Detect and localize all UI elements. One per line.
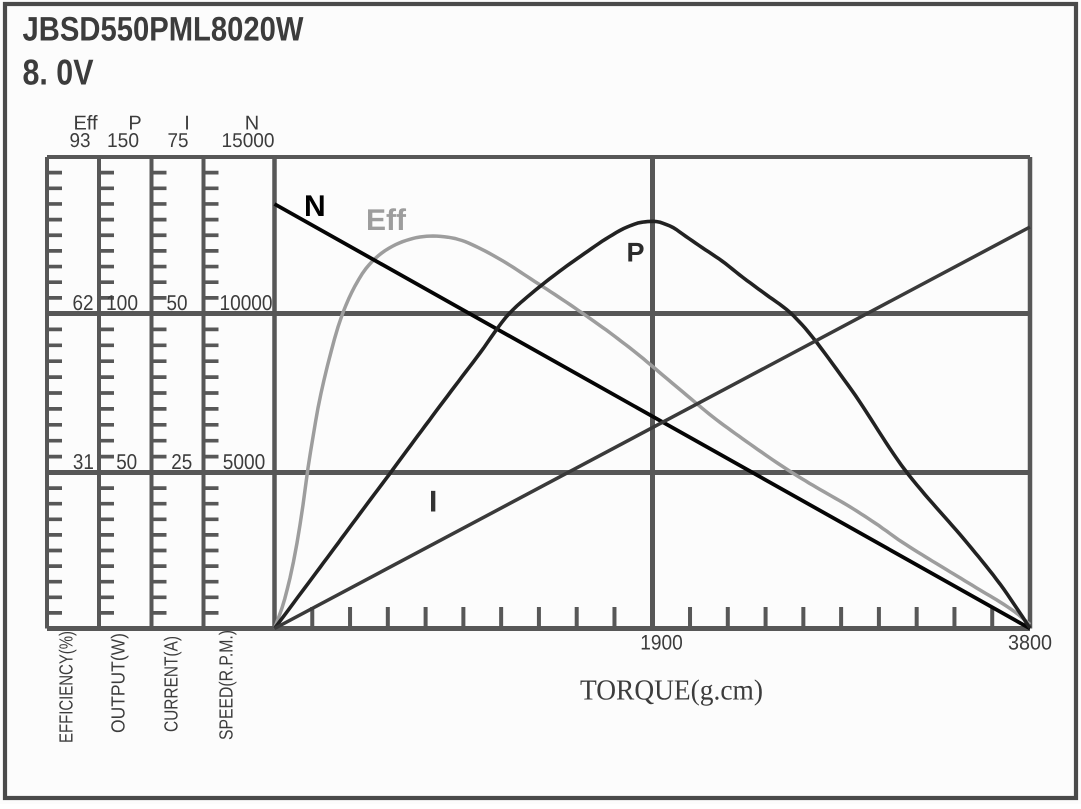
svg-text:93: 93 <box>70 130 91 152</box>
svg-text:Eff: Eff <box>366 204 407 237</box>
svg-text:OUTPUT(W): OUTPUT(W) <box>109 633 130 733</box>
svg-text:P: P <box>627 237 645 267</box>
svg-text:62: 62 <box>73 291 94 315</box>
svg-text:150: 150 <box>107 130 139 152</box>
svg-text:50: 50 <box>167 291 188 315</box>
svg-text:TORQUE(g.cm): TORQUE(g.cm) <box>580 675 763 707</box>
svg-text:CURRENT(A): CURRENT(A) <box>162 636 183 732</box>
svg-text:10000: 10000 <box>220 291 273 315</box>
svg-text:SPEED(R.P.M.): SPEED(R.P.M.) <box>217 630 238 740</box>
svg-text:31: 31 <box>73 450 94 474</box>
svg-text:N: N <box>304 190 326 223</box>
svg-text:75: 75 <box>168 130 189 152</box>
svg-text:50: 50 <box>116 450 137 474</box>
svg-text:3800: 3800 <box>1008 632 1052 655</box>
svg-text:I: I <box>429 486 437 519</box>
svg-text:25: 25 <box>171 450 192 474</box>
svg-text:5000: 5000 <box>223 450 266 474</box>
svg-text:100: 100 <box>106 291 138 315</box>
svg-text:JBSD550PML8020W: JBSD550PML8020W <box>23 11 305 49</box>
svg-text:15000: 15000 <box>222 130 275 152</box>
svg-text:1900: 1900 <box>640 632 683 655</box>
svg-text:8. 0V: 8. 0V <box>23 52 94 93</box>
svg-text:EFFICIENCY(%): EFFICIENCY(%) <box>57 631 78 743</box>
